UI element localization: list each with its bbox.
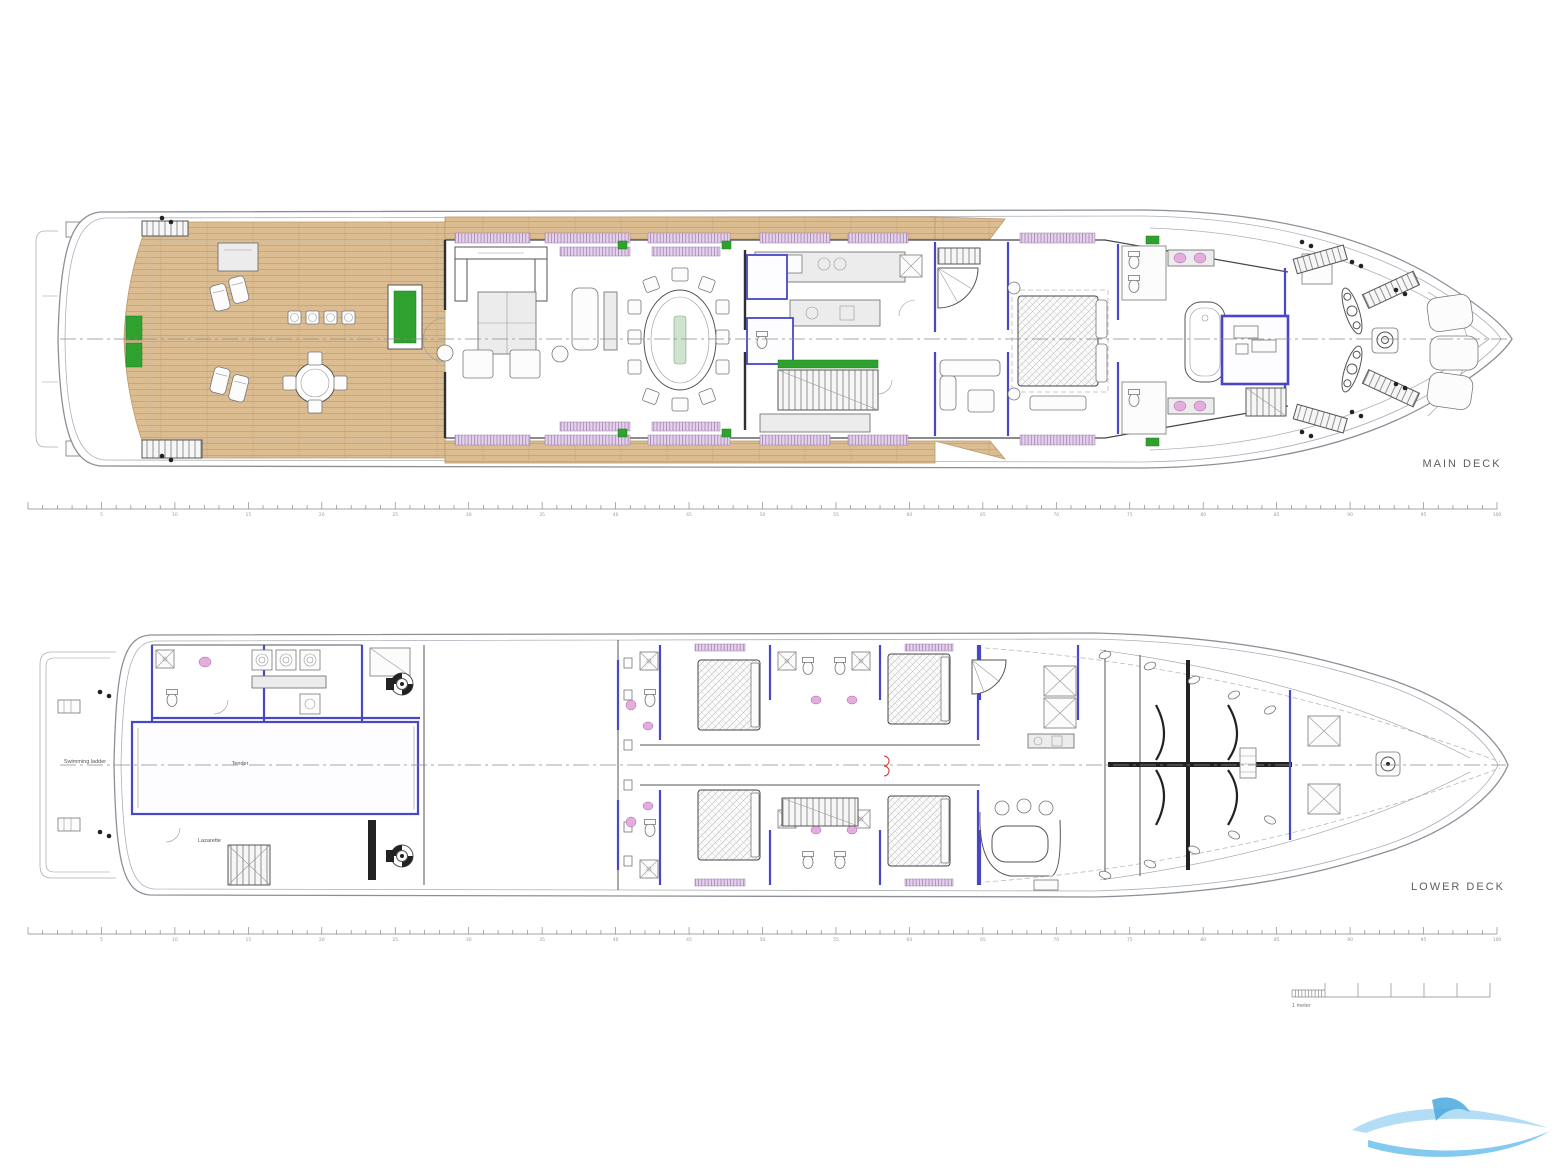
lower-deck-label: LOWER DECK xyxy=(1411,881,1505,893)
svg-text:80: 80 xyxy=(1200,512,1206,518)
crew-mess-table xyxy=(992,826,1048,862)
svg-text:25: 25 xyxy=(392,937,398,943)
svg-text:100: 100 xyxy=(1493,937,1502,943)
svg-text:70: 70 xyxy=(1053,937,1059,943)
svg-text:90: 90 xyxy=(1347,512,1353,518)
svg-text:40: 40 xyxy=(613,937,619,943)
svg-text:5: 5 xyxy=(100,937,103,943)
svg-text:45: 45 xyxy=(686,512,692,518)
capstan-icon xyxy=(1372,328,1398,353)
svg-text:50: 50 xyxy=(760,937,766,943)
guest-bed xyxy=(698,660,760,730)
yacht-deck-plans: MAIN DECK 510152025303540455055606570758… xyxy=(0,0,1560,1170)
svg-text:95: 95 xyxy=(1421,937,1427,943)
svg-text:90: 90 xyxy=(1347,937,1353,943)
tender-label: Tender xyxy=(232,761,249,767)
svg-text:10: 10 xyxy=(172,937,178,943)
tender-garage: Tender xyxy=(132,722,418,814)
thruster-icon xyxy=(391,845,413,867)
thruster-icon xyxy=(391,673,413,695)
swim-platform: Swimming ladder xyxy=(40,652,116,878)
main-deck-ruler: 5101520253035404550556065707580859095100 xyxy=(28,502,1501,518)
svg-text:50: 50 xyxy=(760,512,766,518)
lower-deck-ruler: 5101520253035404550556065707580859095100 xyxy=(28,927,1501,943)
svg-text:55: 55 xyxy=(833,512,839,518)
svg-text:65: 65 xyxy=(980,512,986,518)
svg-text:25: 25 xyxy=(392,512,398,518)
svg-text:15: 15 xyxy=(245,512,251,518)
yacht-deck-plan-page: MAIN DECK 510152025303540455055606570758… xyxy=(0,0,1560,1170)
svg-text:55: 55 xyxy=(833,937,839,943)
emergency-room xyxy=(1222,316,1288,384)
svg-text:70: 70 xyxy=(1053,512,1059,518)
svg-text:60: 60 xyxy=(907,937,913,943)
svg-text:30: 30 xyxy=(466,937,472,943)
main-deck-label: MAIN DECK xyxy=(1422,458,1501,470)
svg-text:20: 20 xyxy=(319,937,325,943)
lazarette-label: Lazarette xyxy=(198,838,221,844)
main-deck-plan: MAIN DECK xyxy=(36,210,1512,470)
svg-text:35: 35 xyxy=(539,512,545,518)
svg-text:85: 85 xyxy=(1274,512,1280,518)
svg-text:100: 100 xyxy=(1493,512,1502,518)
scale-bar-label: 1 meter xyxy=(1292,1003,1311,1009)
svg-text:75: 75 xyxy=(1127,512,1133,518)
chain-locker xyxy=(1308,716,1340,746)
aft-deck-stairs xyxy=(142,440,202,458)
scale-bar: 1 meter xyxy=(1292,983,1490,1009)
svg-text:35: 35 xyxy=(539,937,545,943)
svg-text:15: 15 xyxy=(245,937,251,943)
svg-text:20: 20 xyxy=(319,512,325,518)
svg-text:10: 10 xyxy=(172,512,178,518)
svg-text:85: 85 xyxy=(1274,937,1280,943)
watermark-logo xyxy=(1352,1097,1550,1156)
master-bed xyxy=(1018,296,1098,386)
chain-locker xyxy=(1308,784,1340,814)
svg-text:60: 60 xyxy=(907,512,913,518)
svg-text:75: 75 xyxy=(1127,937,1133,943)
svg-text:95: 95 xyxy=(1421,512,1427,518)
bathtub xyxy=(1185,302,1225,382)
guest-bed xyxy=(698,790,760,860)
chaise-longue xyxy=(572,288,598,350)
guest-bed xyxy=(888,654,950,724)
bow-seating xyxy=(1426,292,1478,416)
svg-text:5: 5 xyxy=(100,512,103,518)
svg-text:45: 45 xyxy=(686,937,692,943)
svg-text:30: 30 xyxy=(466,512,472,518)
guest-bed xyxy=(888,796,950,866)
swimming-ladder-label: Swimming ladder xyxy=(64,759,106,765)
svg-text:80: 80 xyxy=(1200,937,1206,943)
svg-text:65: 65 xyxy=(980,937,986,943)
svg-text:40: 40 xyxy=(613,512,619,518)
lower-deck-plan: Swimming ladder Tender Lazarette xyxy=(40,633,1508,897)
